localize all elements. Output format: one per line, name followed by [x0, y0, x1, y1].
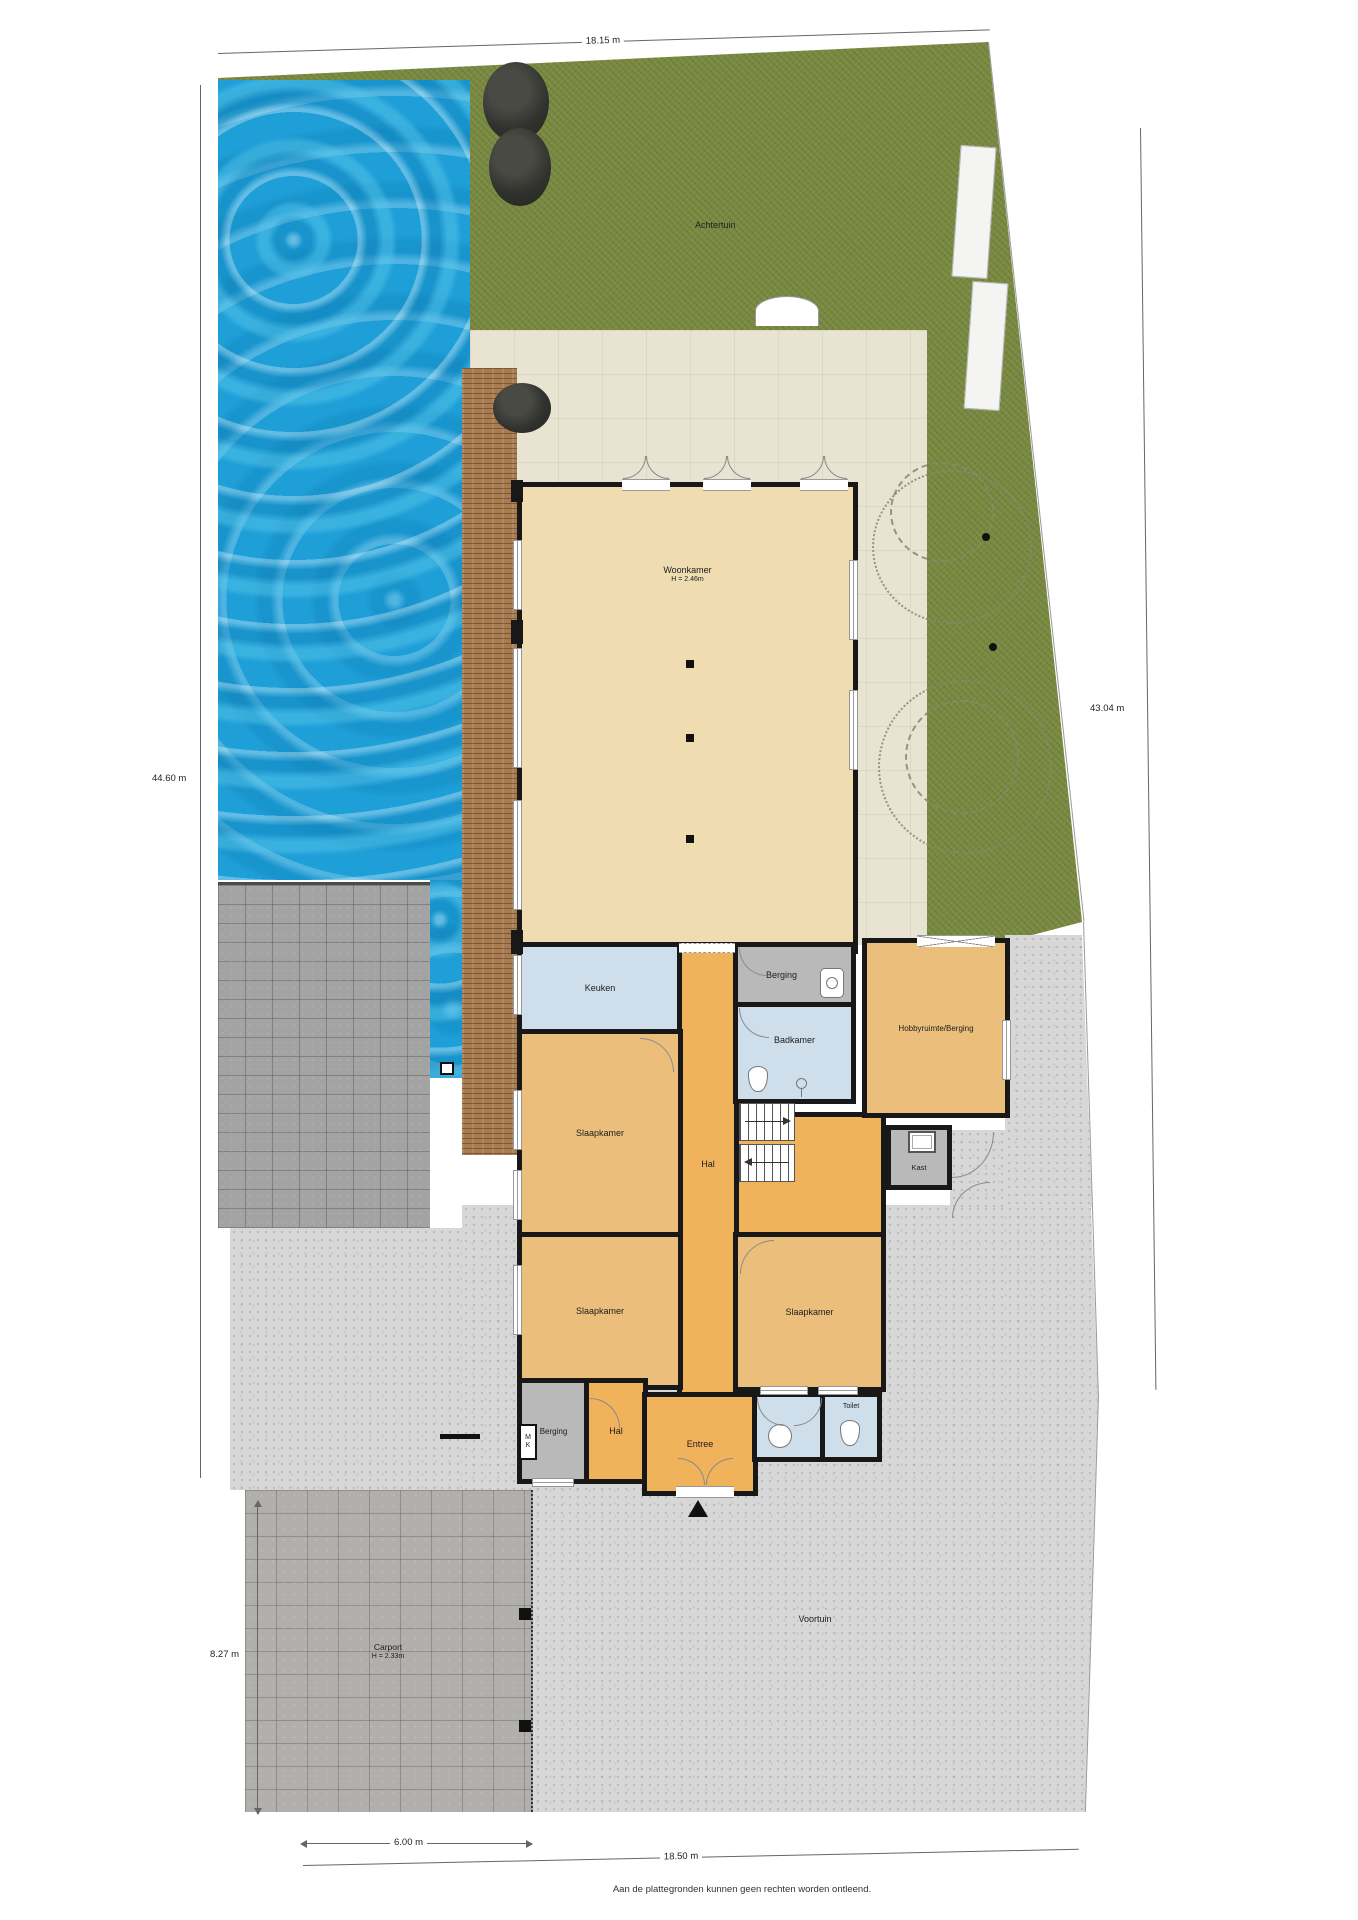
stairs-arrow-line [751, 1162, 789, 1163]
door-opening [800, 479, 848, 491]
tree-icon [493, 383, 551, 433]
room-label: Keuken [585, 983, 616, 994]
kast-box-icon [908, 1131, 936, 1153]
window [849, 690, 858, 770]
wood-deck [462, 368, 517, 1155]
window [513, 955, 522, 1015]
stairs-arrow-line [745, 1121, 783, 1122]
room-slaapkamer-2: Slaapkamer [517, 1232, 683, 1390]
front-door-opening [676, 1486, 734, 1498]
room-label: Woonkamer [522, 565, 853, 576]
dimension-label-bottom-outer: 18.50 m [660, 1850, 703, 1864]
shower-icon-line [801, 1088, 802, 1097]
garden-steps-icon [755, 296, 819, 326]
dimension-arrow-left [300, 1840, 307, 1848]
side-path [230, 1228, 462, 1490]
tree-outline-icon [890, 462, 994, 562]
door-opening [622, 479, 670, 491]
room-height-label: H = 2.46m [522, 576, 853, 584]
disclaimer-text: Aan de plattegronden kunnen geen rechten… [442, 1884, 1042, 1895]
washing-machine-icon [820, 968, 844, 998]
dimension-label-top: 18.15 m [582, 34, 625, 48]
dimension-label-right: 43.04 m [1086, 702, 1128, 715]
column-marker [686, 734, 694, 742]
meterkast-m: M [525, 1434, 531, 1442]
wall-pier [511, 620, 523, 644]
dimension-line [200, 85, 201, 1478]
room-label: Hal [682, 1159, 734, 1170]
window [513, 1170, 522, 1220]
room-label: Slaapkamer [576, 1128, 624, 1139]
room-label: Badkamer [774, 1035, 815, 1046]
double-door-opening [917, 935, 995, 947]
door-opening [703, 479, 751, 491]
room-label: Slaapkamer [576, 1306, 624, 1317]
tree-trunk-dot [989, 643, 997, 651]
dimension-arrow-down [254, 1808, 262, 1815]
window [513, 1265, 522, 1335]
window [1002, 1020, 1011, 1080]
swimming-pool-lane [430, 880, 462, 1078]
column-marker [686, 660, 694, 668]
pool-ladder-icon [440, 1062, 454, 1075]
stairs-arrow-left-icon [744, 1158, 752, 1166]
room-label: Slaapkamer [785, 1307, 833, 1318]
tree-trunk-dot [982, 533, 990, 541]
room-label: Berging [540, 1427, 568, 1436]
front-yard-strip [1005, 935, 1093, 1207]
carport-label: Carport [374, 1642, 402, 1652]
dimension-label-carport: 8.27 m [206, 1648, 243, 1661]
carport-height-label: H = 2.33m [372, 1652, 405, 1661]
dimension-arrow-up [254, 1500, 262, 1507]
meterkast-k: K [526, 1442, 531, 1450]
room-hobbyruimte: Hobbyruimte/Berging [862, 938, 1010, 1118]
wall-pier [511, 480, 523, 502]
dimension-label-left: 44.60 m [148, 772, 190, 785]
sink-icon [768, 1424, 792, 1448]
room-keuken: Keuken [517, 942, 683, 1035]
carport-boundary-dash [440, 1434, 480, 1439]
carport-post [519, 1720, 531, 1732]
window [532, 1478, 574, 1487]
swimming-pool [218, 80, 470, 880]
floorplan-canvas: Achtertuin Voortuin Carport H = 2.33m W [0, 0, 1358, 1920]
dimension-label-bottom-inner: 6.00 m [390, 1836, 427, 1849]
carport-post [519, 1608, 531, 1620]
window [818, 1386, 858, 1395]
room-hal-bottom: Hal [584, 1378, 648, 1484]
window [513, 540, 522, 610]
room-label: Entree [687, 1439, 714, 1450]
dimension-line [257, 1502, 258, 1814]
window [760, 1386, 808, 1395]
front-yard-label: Voortuin [760, 1614, 870, 1624]
tree-outline-icon [905, 700, 1019, 814]
window [513, 648, 522, 768]
carport-area: Carport H = 2.33m [245, 1490, 533, 1812]
dimension-line [1140, 128, 1156, 1390]
wall-pier [511, 930, 523, 954]
tree-icon [489, 128, 551, 206]
room-label: Berging [766, 970, 797, 981]
sliding-door-opening [679, 943, 735, 953]
driveway-paving [218, 882, 430, 1228]
window [849, 560, 858, 640]
stairs-arrow-right-icon [783, 1117, 791, 1125]
north-arrow-icon [688, 1500, 708, 1517]
back-garden-label: Achtertuin [695, 220, 736, 230]
room-label: Kast [911, 1163, 926, 1172]
room-woonkamer: Woonkamer H = 2.46m [517, 482, 858, 954]
window [513, 800, 522, 910]
dimension-arrow-right [526, 1840, 533, 1848]
column-marker [686, 835, 694, 843]
room-label: Toilet [825, 1403, 877, 1410]
meterkast: M K [519, 1424, 537, 1460]
room-label: Hobbyruimte/Berging [898, 1024, 973, 1033]
window [513, 1090, 522, 1150]
